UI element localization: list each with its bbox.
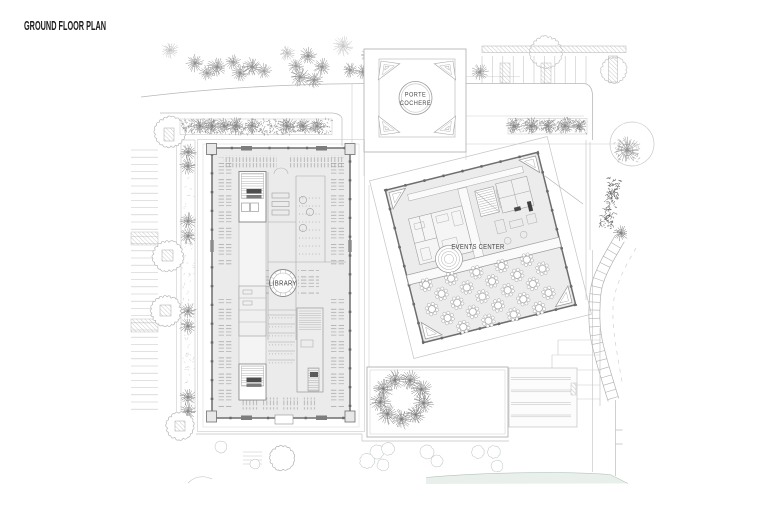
svg-text:GROUND FLOOR PLAN: GROUND FLOOR PLAN — [24, 20, 106, 33]
svg-text:LIBRARY: LIBRARY — [269, 280, 297, 288]
svg-text:PORTE: PORTE — [405, 92, 426, 98]
svg-text:EVENTS CENTER: EVENTS CENTER — [451, 244, 504, 252]
svg-text:COCHERE: COCHERE — [400, 101, 431, 107]
